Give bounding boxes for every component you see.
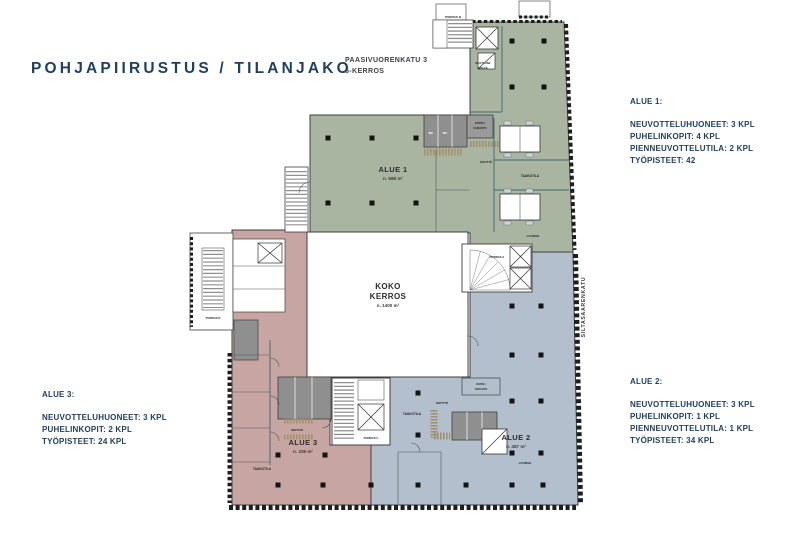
floor-plan: PORRAS B MULTI-USE SPACE WC WC KOPIO / V… xyxy=(0,0,799,533)
multiuse-label-1: MULTI-USE xyxy=(475,61,490,65)
alue3-name: ALUE 3 xyxy=(288,438,317,447)
stair-porras-a: PORRAS A xyxy=(462,244,532,292)
alue3-size: n. 339 m² xyxy=(293,449,313,454)
alue1-name: ALUE 1 xyxy=(378,165,407,174)
keittio-label: KEITTIÖ xyxy=(436,400,448,405)
wc-label: WC xyxy=(443,131,448,135)
lounge-label: LOUNGE xyxy=(527,234,540,238)
kopio-label-1: KOPIO / xyxy=(476,382,486,386)
keittio-label: KEITTIÖ xyxy=(480,159,492,164)
stair-porras-b: PORRAS B xyxy=(433,15,473,48)
multiuse-label-2: SPACE xyxy=(478,66,488,70)
stair-porras-c: PORRAS C xyxy=(332,378,390,445)
taukotila-label: TAUKOTILA xyxy=(521,174,540,178)
street-label: SILTASAARENKATU xyxy=(581,277,587,338)
stair-mid-left xyxy=(285,167,308,232)
meeting-table xyxy=(500,189,540,225)
kopio-label-1: KOPIO / xyxy=(475,121,486,125)
alue1-size: n. 588 m² xyxy=(383,176,403,181)
wc-label: WC xyxy=(429,131,434,135)
taukotila-label: TAUKOTILA xyxy=(253,467,272,471)
kopio-label-2: VARASTO xyxy=(473,126,487,130)
koko-line1: KOKO xyxy=(375,282,401,291)
keittio-label: KEITTIÖ xyxy=(291,427,303,432)
porras-b-label: PORRAS B xyxy=(445,15,462,19)
porras-d-label: PORRAS D xyxy=(206,316,221,320)
kopio-label-2: VARASTO xyxy=(475,387,487,391)
alue2-name: ALUE 2 xyxy=(501,433,530,442)
meeting-table xyxy=(500,121,540,157)
alue2-size: n. 487 m² xyxy=(506,444,526,449)
stair-porras-d: PORRAS D xyxy=(190,233,233,330)
kopio-varasto-green: KOPIO / VARASTO xyxy=(467,115,493,138)
wc-block-pink xyxy=(278,377,331,419)
koko-line2: KERROS xyxy=(370,292,407,301)
koko-size: n. 1400 m² xyxy=(377,303,400,308)
wc-block-green: WC WC xyxy=(424,115,467,147)
porras-c-label: PORRAS C xyxy=(364,436,379,440)
lounge-label: LOUNGE xyxy=(519,461,532,465)
porras-a-label: PORRAS A xyxy=(490,255,505,259)
taukotila-label: TAUKOTILA xyxy=(403,412,422,416)
